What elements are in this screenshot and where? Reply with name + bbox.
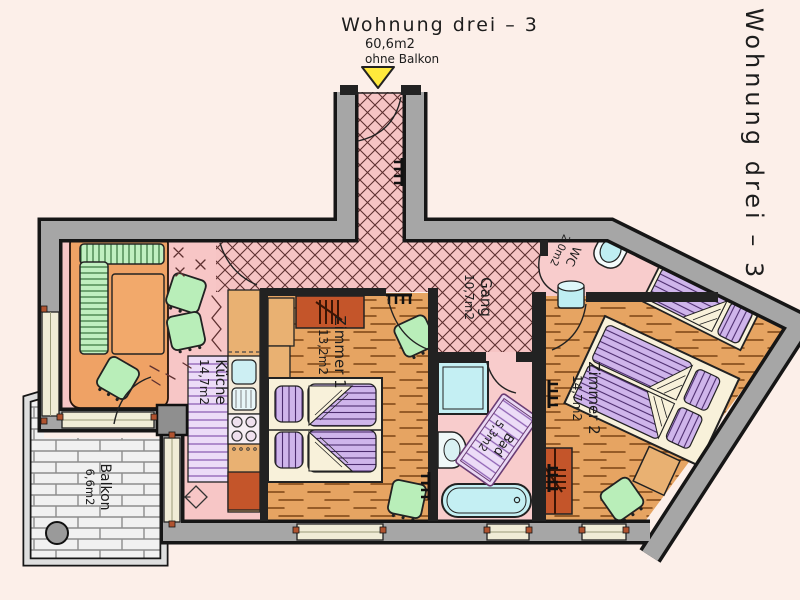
room-label-kueche: Küche 14,7m2 bbox=[197, 359, 230, 405]
corner-bench-side bbox=[80, 262, 108, 354]
kueche-name: Küche bbox=[212, 359, 230, 405]
dining-table bbox=[112, 274, 164, 354]
entrance-marker-icon bbox=[362, 67, 394, 88]
balkon-name: Balkon bbox=[97, 463, 113, 510]
total-area: 60,6m2 bbox=[365, 37, 415, 52]
zimmer1-area: 13,2m2 bbox=[316, 329, 330, 375]
corner-bench-top bbox=[80, 244, 164, 264]
zimmer2-name: Zimmer 2 bbox=[585, 361, 603, 434]
floorplan-drawing: Bad 5,3m2 bbox=[0, 0, 800, 600]
room-label-gang: Gang 10,7m2 bbox=[462, 274, 495, 320]
room-label-balkon: Balkon 6,6m2 bbox=[83, 463, 113, 510]
gang-area: 10,7m2 bbox=[462, 274, 476, 320]
shower bbox=[438, 362, 488, 414]
balcony-door-column bbox=[157, 405, 187, 435]
kitchen-fridge bbox=[228, 472, 260, 510]
zimmer1-name: Zimmer 1 bbox=[331, 315, 349, 388]
gang-name: Gang bbox=[477, 277, 495, 317]
floorplan-page: Bad 5,3m2 bbox=[0, 0, 800, 600]
kueche-area: 14,7m2 bbox=[197, 359, 211, 405]
balkon-area: 6,6m2 bbox=[83, 469, 97, 506]
balcony-column bbox=[46, 522, 68, 544]
balcony-note: ohne Balkon bbox=[365, 52, 439, 66]
side-title: Wohnung drei – 3 bbox=[740, 8, 768, 308]
page-title: Wohnung drei – 3 bbox=[335, 14, 545, 36]
zimmer1-dresser bbox=[268, 298, 294, 346]
zimmer2-area: 14,7m2 bbox=[570, 375, 584, 421]
